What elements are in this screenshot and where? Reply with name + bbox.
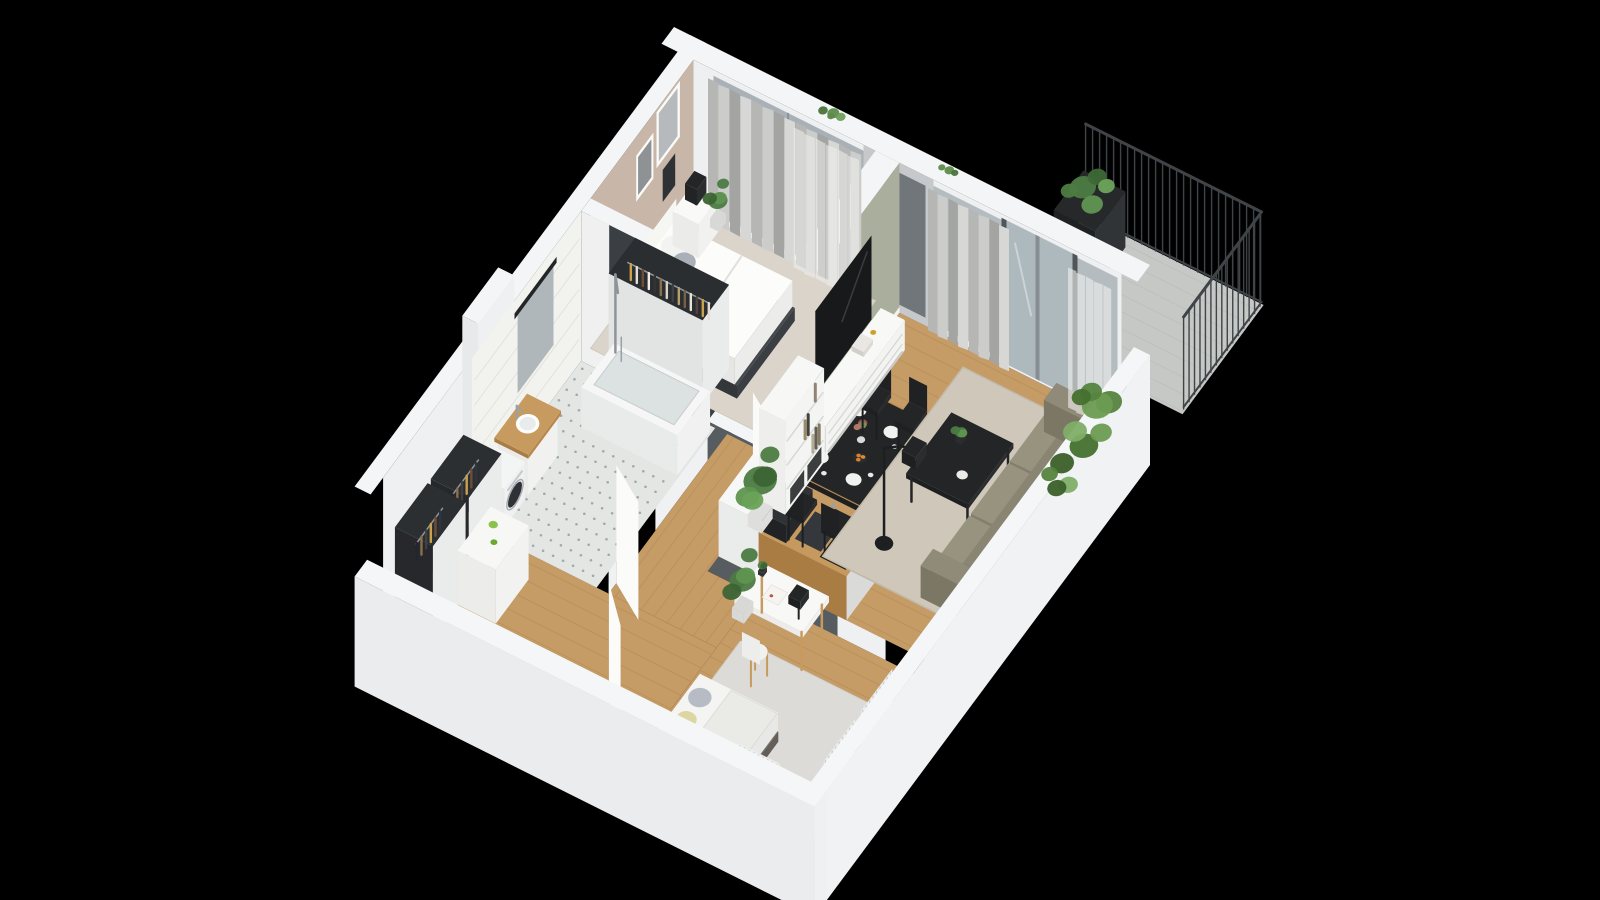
bathroom-floor-tiles-dot [662,480,665,483]
bathroom-floor-tiles-dot [570,549,573,552]
bathroom-floor-tiles-dot [582,440,585,443]
bathroom-floor-tiles-dot [582,569,585,572]
living-curtains-strip [979,215,989,361]
bathroom-floor-tiles-dot [584,455,587,458]
bathroom-floor-tiles-dot [555,513,558,516]
living-curtains-strip [949,199,958,346]
bathroom-floor-tiles-dot [530,529,533,532]
bathroom-floor-tiles-dot [576,466,579,469]
bedroom-curtains-strip [784,118,795,265]
bathroom-floor-tiles-dot [577,538,580,541]
bathroom-floor-tiles-dot [603,522,606,525]
bathroom-floor-tiles-dot [609,496,612,499]
bathroom-floor-tiles-dot [639,511,642,514]
bathroom-floor-tiles-dot [594,460,597,463]
living-curtains-strip [969,209,978,356]
bathroom-floor-tiles-dot [593,517,596,520]
bedroom-curtains-strip [762,107,773,253]
bathroom-floor-tiles-dot [569,476,572,479]
bathroom-floor-tiles-dot [599,491,602,494]
bedroom-curtains-strip [752,100,762,247]
bathroom-floor-tiles-dot [568,404,571,407]
bedroom-curtains-strip [730,89,740,236]
bathroom-floor-tiles-dot [600,564,603,567]
bathroom-floor-tiles-dot [585,528,588,531]
bathroom-floor-tiles-dot [566,461,569,464]
living-curtains-strip [938,194,948,340]
balcony-door-divider [1036,235,1040,381]
bedroom-sheer-curtain-strip [804,134,815,278]
bathroom-floor-tiles-dot [581,367,584,370]
bathroom-floor-tiles-dot [652,475,655,478]
bathroom-floor-tiles-dot [559,471,562,474]
bathroom-floor-tiles-dot [586,471,589,474]
bathroom-floor-tiles-dot [605,538,608,541]
bathroom-floor-tiles-dot [587,543,590,546]
bedroom-sheer-curtain-strip [826,145,837,289]
bathroom-floor-tiles-dot [597,548,600,551]
bathroom-floor-tiles-dot [612,455,615,458]
bathroom-floor-tiles-dot [553,497,556,500]
bathroom-floor-tiles-dot [634,480,637,483]
living-curtains-strip [999,225,1009,371]
floorplan-stage: ❄ [0,0,1600,900]
single-bed-pillow-gray [688,688,712,707]
bathroom-floor-tiles-dot [595,533,598,536]
bedroom-curtains-strip [774,111,784,258]
bathroom-floor-tiles-dot [571,492,574,495]
bathroom-floor-tiles-dot [654,490,657,493]
bathroom-floor-tiles-dot [589,486,592,489]
bathroom-floor-tiles-dot [591,502,594,505]
bathroom-floor-tiles-dot [557,528,560,531]
bathroom-floor-tiles-dot [596,476,599,479]
bathroom-floor-tiles-dot [543,492,546,495]
bathroom-floor-tiles-dot [578,409,581,412]
bathroom-floor-tiles-dot [558,399,561,402]
bathroom-floor-tiles-dot [592,574,595,577]
sideboard-candle [870,330,876,335]
isometric-apartment-floorplan: ❄ [0,0,1600,900]
bathroom-floor-tiles-dot [581,497,584,500]
bathroom-floor-tiles-dot [565,388,568,391]
bathroom-floor-tiles-dot [646,501,649,504]
bedroom-curtains-strip [740,96,751,242]
bathroom-floor-tiles-dot [622,460,625,463]
bathroom-floor-tiles-dot [607,553,610,556]
bathroom-floor-tiles-dot [590,559,593,562]
sw-exterior-wall-side-x [815,790,828,900]
bathroom-floor-tiles-dot [562,559,565,562]
bathroom-floor-tiles-dot [527,513,530,516]
bathroom-floor-tiles-dot [567,533,570,536]
bedroom-curtains-strip [718,85,729,231]
bedroom-sheer-curtain-strip [816,138,826,283]
bathroom-floor-tiles-dot [583,512,586,515]
bathroom-floor-tiles-dot [642,470,645,473]
bathroom-floor-tiles-dot [563,502,566,505]
bathroom-floor-tiles-dot [632,465,635,468]
bathroom-floor-tiles-dot [535,503,538,506]
bathroom-floor-tiles-dot [579,481,582,484]
bathroom-floor-tiles-dot [606,481,609,484]
living-curtains-strip [928,188,938,334]
bathroom-floor-tiles-dot [636,496,639,499]
bathroom-floor-tiles-dot [601,507,604,510]
bathroom-floor-tiles-dot [565,518,568,521]
bathroom-floor-tiles-dot [551,482,554,485]
bathroom-floor-tiles-dot [564,445,567,448]
bathroom-floor-tiles-dot [611,512,614,515]
living-curtains-strip [958,205,968,351]
bathroom-floor-tiles-dot [561,487,564,490]
bathroom-floor-tiles-dot [532,544,535,547]
cabinet-decor-green-2 [490,539,497,545]
bathroom-floor-tiles-dot [604,465,607,468]
bathroom-floor-tiles-dot [550,539,553,542]
bathroom-floor-tiles-dot [573,378,576,381]
bathroom-floor-tiles-dot [570,419,573,422]
bathroom-floor-tiles-dot [575,523,578,526]
bathroom-floor-tiles-dot [560,544,563,547]
living-curtains-strip [990,219,1000,366]
bathroom-floor-tiles-dot [540,534,543,537]
bathroom-floor-tiles-dot [602,450,605,453]
bathroom-floor-tiles-dot [545,508,548,511]
bathroom-floor-tiles-dot [562,430,565,433]
bathroom-floor-tiles-dot [542,549,545,552]
bathroom-floor-tiles-dot [574,450,577,453]
bedroom-sheer-curtain-strip [794,127,804,272]
bathroom-floor-tiles-dot [575,393,578,396]
bathroom-floor-tiles-dot [537,518,540,521]
bathroom-floor-tiles-dot [572,435,575,438]
bathroom-floor-tiles-dot [572,564,575,567]
bathroom-floor-tiles-dot [525,498,528,501]
bathroom-floor-tiles-dot [552,554,555,557]
living-sheer-curtain-strip [1068,268,1076,412]
bathroom-floor-tiles-dot [592,445,595,448]
bathroom-floor-tiles-dot [644,485,647,488]
bathroom-floor-tiles-dot [580,554,583,557]
bathroom-floor-tiles-dot [613,527,616,530]
bathroom-floor-tiles-dot [547,523,550,526]
bathroom-floor-tiles-dot [573,507,576,510]
bathroom-floor-tiles-dot [624,475,627,478]
